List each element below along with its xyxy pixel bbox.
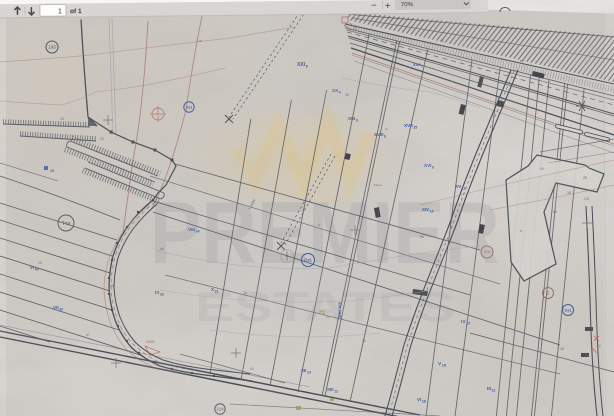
svg-text:−: − — [371, 0, 377, 11]
svg-text:1: 1 — [58, 8, 62, 15]
svg-text:70%: 70% — [401, 2, 414, 8]
svg-text:+: + — [385, 1, 391, 12]
svg-text:of 1: of 1 — [70, 8, 82, 15]
